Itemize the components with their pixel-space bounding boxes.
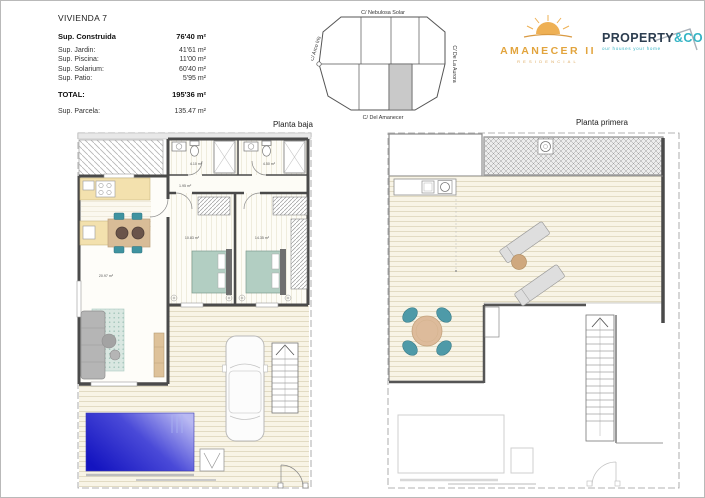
plate — [116, 227, 128, 239]
area-row-construida: Sup. Construida 76'40 m² — [58, 32, 206, 42]
wardrobe — [198, 197, 230, 215]
property-suffix: &CO — [674, 31, 703, 45]
property-name: PROPERTY&CO — [602, 31, 700, 45]
stove — [96, 181, 115, 197]
headboard — [280, 249, 286, 295]
kitchenette-burner — [441, 183, 450, 192]
street-label-top: C/ Nebulosa Solar — [361, 10, 405, 16]
plan-title-ground: Planta baja — [203, 120, 313, 129]
svg-text:10.83 m²: 10.83 m² — [185, 236, 200, 240]
kitchen-sink — [83, 181, 94, 190]
first-floor-plan — [386, 131, 681, 491]
pillow — [272, 254, 279, 269]
plan-sheet: VIVIENDA 7 Sup. Construida 76'40 m² Sup.… — [0, 0, 705, 498]
highlighted-plot — [389, 64, 412, 110]
area-row-total: TOTAL: 195'36 m² — [58, 90, 206, 100]
ground-floor-plan: 4.10 m² 4.50 m² 1.95 m² 10.83 m² — [76, 131, 313, 491]
area-row-piscina: Sup. Piscina: 11'00 m² — [58, 55, 206, 65]
hall-label: 1.95 m² — [179, 184, 192, 188]
sun-icon — [518, 13, 578, 39]
utility-unit — [485, 307, 499, 337]
street-label-bottom: C/ Del Amanecer — [363, 115, 404, 121]
area-row-patio: Sup. Patio: 5'95 m² — [58, 74, 206, 84]
shower-tray — [200, 449, 224, 471]
area-row-jardin: Sup. Jardin: 41'61 m² — [58, 46, 206, 56]
solarium-deck — [389, 176, 663, 381]
gate-post — [303, 483, 308, 488]
roof-area — [389, 134, 482, 176]
property-logo: PROPERTY&CO our houses your home — [602, 31, 700, 51]
amanecer-sub: RESIDENCIAL — [489, 59, 607, 64]
wardrobe — [291, 219, 307, 289]
car — [223, 336, 268, 441]
pergola — [484, 137, 663, 175]
info-panel: VIVIENDA 7 Sup. Construida 76'40 m² Sup.… — [58, 13, 206, 117]
side-table — [512, 255, 527, 270]
site-plan: C/ Nebulosa Solar C/ Del Amanecer C/ Arc… — [311, 7, 461, 122]
patio-hatch — [79, 140, 163, 176]
amanecer-logo: AMANECER II RESIDENCIAL — [489, 13, 607, 64]
svg-text:4.10 m²: 4.10 m² — [190, 162, 203, 166]
sideboard — [154, 333, 164, 377]
area-row-solarium: Sup. Solarium: 60'40 m² — [58, 65, 206, 75]
vivienda-title: VIVIENDA 7 — [58, 13, 206, 23]
pouf — [110, 350, 120, 360]
gate-post — [278, 483, 283, 488]
site-marker — [317, 62, 321, 66]
svg-text:14.35 m²: 14.35 m² — [255, 236, 270, 240]
pillow — [218, 254, 225, 269]
site-block-outline — [319, 17, 445, 110]
svg-text:4.50 m²: 4.50 m² — [263, 162, 276, 166]
pillow — [218, 273, 225, 288]
amanecer-name: AMANECER II — [489, 45, 607, 57]
staircase-ground — [272, 343, 298, 413]
pouf — [102, 334, 116, 348]
side-sink — [83, 226, 95, 239]
area-row-parcela: Sup. Parcela: 135.47 m² — [58, 107, 206, 117]
headboard — [226, 249, 232, 295]
round-table — [412, 316, 442, 346]
plan-title-first: Planta primera — [518, 118, 628, 127]
living-label: 20.97 m² — [99, 274, 114, 278]
staircase-first — [586, 315, 614, 441]
pillow — [272, 273, 279, 288]
ghost-gate-arc — [592, 462, 616, 486]
plate — [132, 227, 144, 239]
wardrobe — [273, 197, 307, 215]
street-label-right: C/ De La Aurora — [451, 45, 457, 82]
